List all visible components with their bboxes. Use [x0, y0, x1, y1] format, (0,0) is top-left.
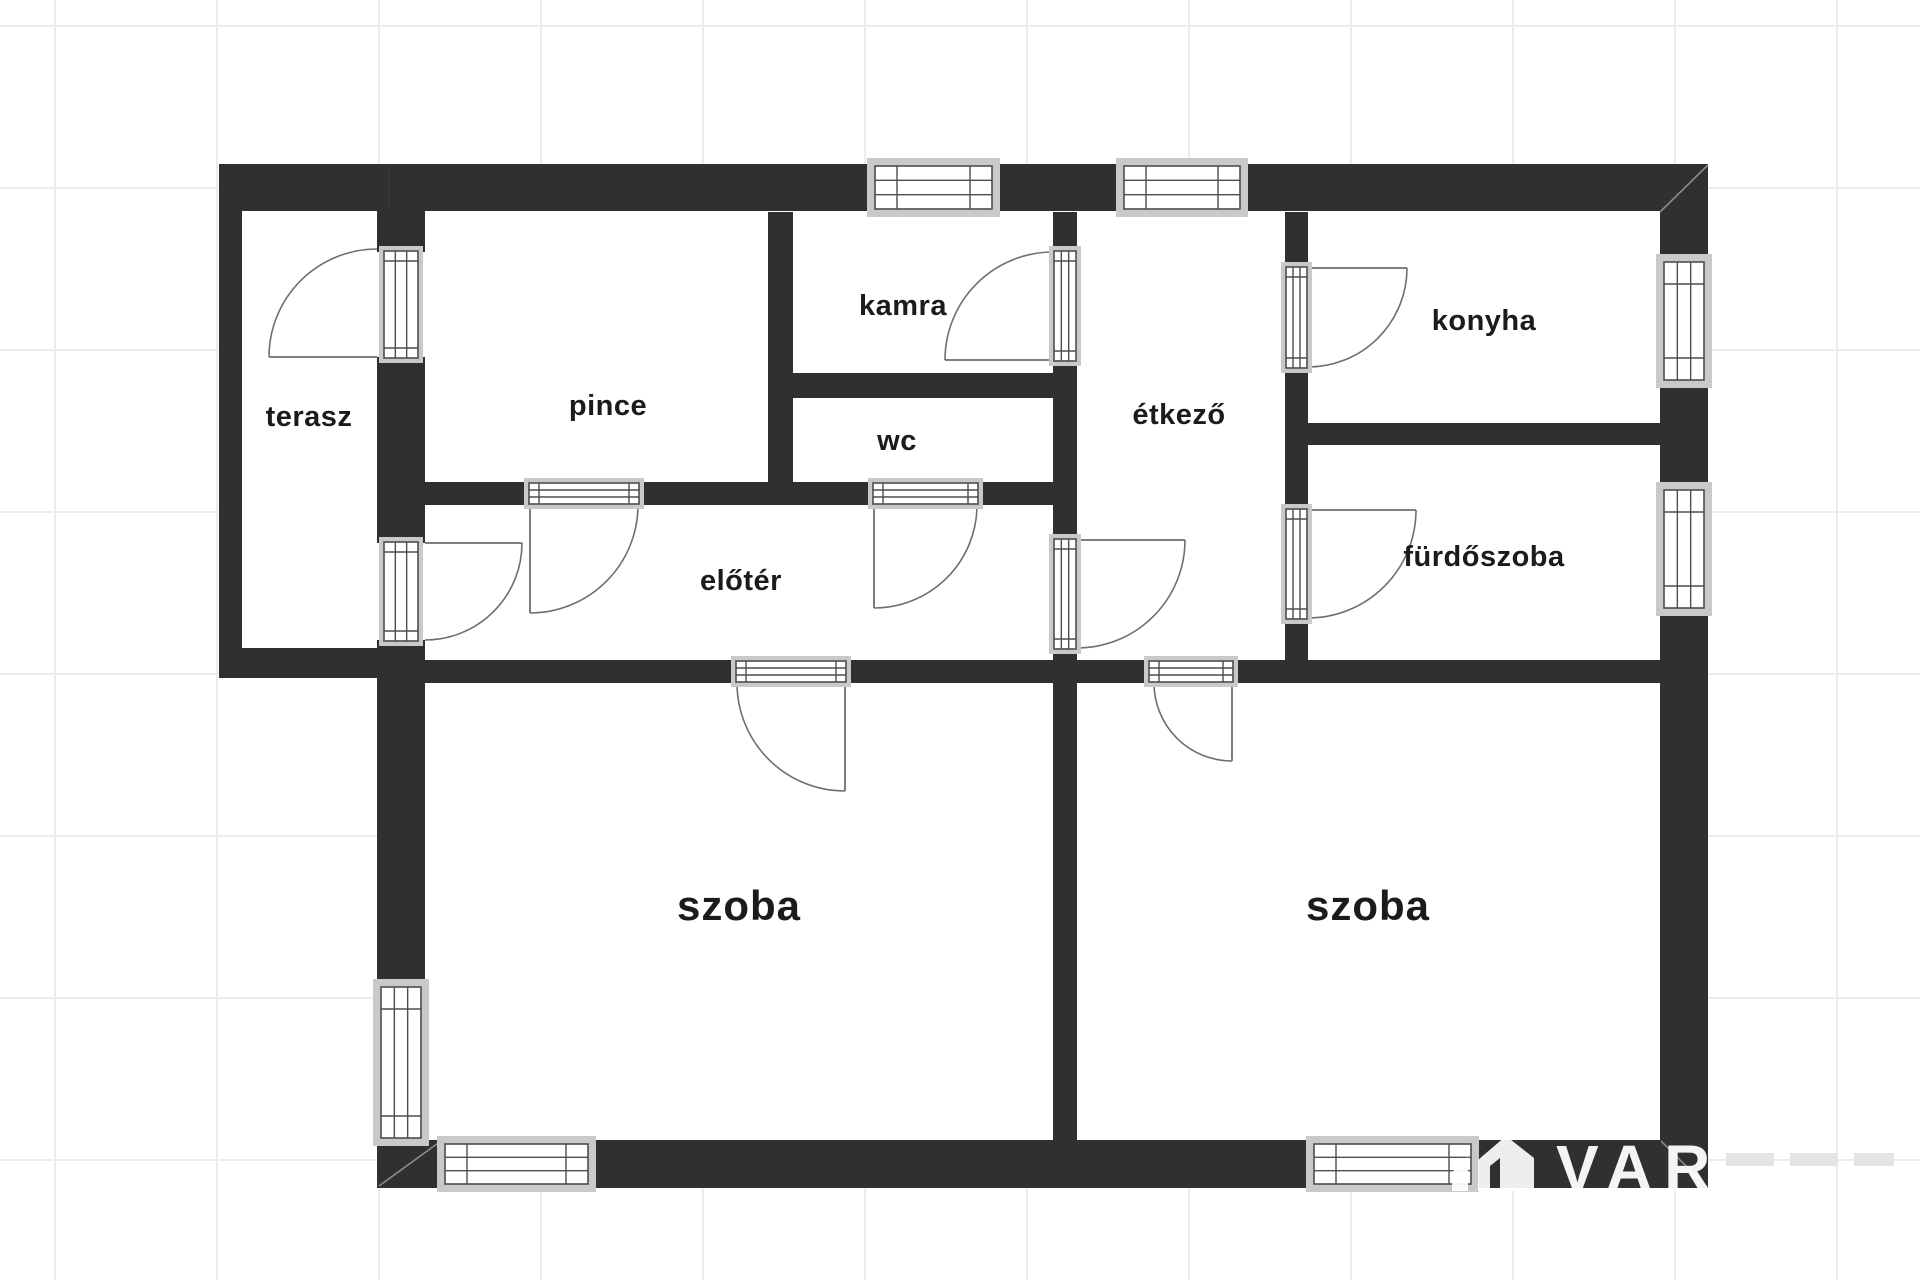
door-panel [1281, 504, 1312, 624]
wall-segment [377, 164, 425, 252]
wall-segment [590, 1140, 1312, 1188]
window [373, 979, 429, 1146]
wall-segment [994, 164, 1122, 211]
door-panel-pane [1054, 251, 1076, 361]
wall-segment [1053, 683, 1077, 1140]
window-pane [875, 166, 992, 209]
wall-segment [793, 373, 1053, 398]
door-panel-pane [529, 483, 639, 504]
wall-segment [1660, 382, 1708, 488]
door-panel [1144, 656, 1238, 687]
door-panel [1049, 534, 1081, 654]
door-panel-pane [736, 661, 846, 682]
wall-segment [425, 482, 530, 505]
wall-segment [1242, 164, 1708, 211]
window [1116, 158, 1248, 217]
watermark-text: VAR [1556, 1132, 1722, 1204]
door-panel [524, 478, 644, 509]
wall-segment [377, 678, 425, 985]
wall-segment [425, 660, 737, 683]
floor-plan: terasz pince kamra wc étkező konyha fürd… [0, 0, 1920, 1280]
room-label-etkezo: étkező [1132, 399, 1225, 431]
wall-segment [1660, 164, 1708, 260]
door-panel-pane [1054, 539, 1076, 649]
wall-segment [1660, 610, 1708, 1188]
room-label-kamra: kamra [859, 290, 947, 322]
wall-segment [1285, 618, 1308, 660]
watermark-fade-dash [1726, 1153, 1774, 1166]
window [437, 1136, 596, 1192]
wall-segment [768, 212, 793, 482]
wall-segment [219, 648, 425, 678]
door-panel-pane [384, 251, 418, 358]
room-label-furdoszoba: fürdőszoba [1403, 541, 1565, 573]
door-panel-pane [873, 483, 978, 504]
door-panel [379, 246, 423, 363]
wall-segment [377, 357, 425, 543]
room-label-szoba-left: szoba [677, 882, 801, 929]
window-pane [1124, 166, 1240, 209]
door-panel-pane [1149, 661, 1233, 682]
wall-segment [1285, 212, 1308, 268]
door-panel [731, 656, 851, 687]
wall-segment [1308, 423, 1660, 445]
door-panel-pane [384, 542, 418, 641]
room-label-konyha: konyha [1432, 305, 1537, 337]
door-panel [1281, 262, 1312, 373]
window-pane [1664, 490, 1704, 608]
watermark-fade-dash [1854, 1153, 1894, 1166]
door-panel [868, 478, 983, 509]
room-label-terasz: terasz [266, 401, 353, 433]
window [1656, 482, 1712, 616]
wall-segment [1232, 660, 1660, 683]
room-label-eloter: előtér [700, 565, 782, 597]
window-pane [1664, 262, 1704, 380]
door-panel [1049, 246, 1081, 366]
door-panel [379, 537, 423, 646]
wall-segment [1285, 367, 1308, 510]
door-panel-pane [1286, 267, 1307, 368]
wall-segment [219, 164, 242, 678]
window [1656, 254, 1712, 388]
wall-segment [845, 660, 1150, 683]
floor-plan-page: terasz pince kamra wc étkező konyha fürd… [0, 0, 1920, 1280]
wall-segment [638, 482, 874, 505]
wall-segment [219, 164, 873, 211]
room-label-pince: pince [569, 390, 647, 422]
room-label-szoba-right: szoba [1306, 882, 1430, 929]
window-pane [1314, 1144, 1471, 1184]
door-panel-pane [1286, 509, 1307, 619]
watermark-fade-dash [1790, 1153, 1838, 1166]
window [867, 158, 1000, 217]
room-label-wc: wc [876, 425, 917, 457]
wall-segment [1053, 360, 1077, 540]
